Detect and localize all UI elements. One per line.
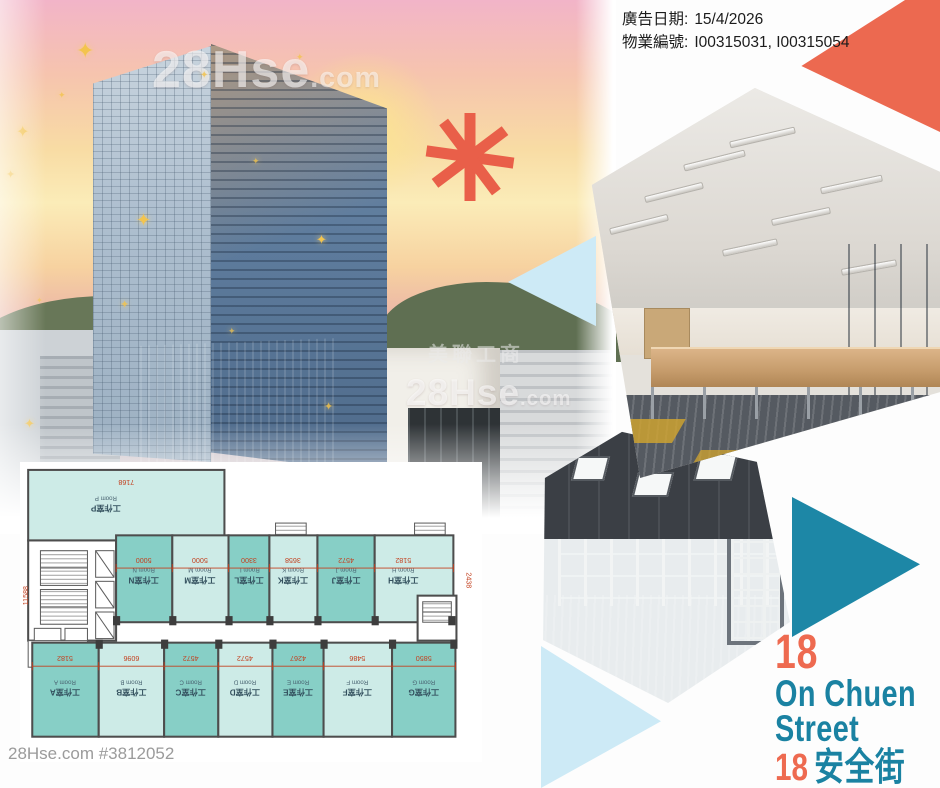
- floor-plan-svg: 工作室P Room P 7168: [20, 462, 482, 762]
- svg-text:Room D: Room D: [233, 678, 256, 685]
- svg-text:工作室D: 工作室D: [230, 688, 260, 698]
- svg-text:Room H: Room H: [392, 566, 414, 573]
- svg-text:工作室C: 工作室C: [175, 688, 205, 698]
- svg-text:工作室E: 工作室E: [283, 688, 313, 698]
- svg-text:7168: 7168: [118, 478, 134, 486]
- property-no-line: 物業編號:I00315031, I00315054: [622, 31, 849, 54]
- svg-text:工作室P: 工作室P: [90, 504, 120, 514]
- svg-text:Room E: Room E: [287, 678, 309, 685]
- svg-text:Room P: Room P: [95, 495, 117, 502]
- title-zh-row: 18安全街: [775, 750, 916, 786]
- sparkle-icon: ✦: [252, 156, 260, 167]
- svg-text:工作室M: 工作室M: [184, 575, 215, 585]
- svg-text:Room L: Room L: [238, 566, 260, 573]
- floorplan-unit: 工作室P Room P 7168: [28, 470, 224, 541]
- svg-text:工作室G: 工作室G: [408, 688, 439, 698]
- svg-text:Room B: Room B: [120, 678, 142, 685]
- svg-text:5182: 5182: [57, 654, 73, 662]
- svg-text:Room N: Room N: [132, 566, 154, 573]
- svg-text:工作室H: 工作室H: [388, 575, 418, 585]
- svg-text:工作室J: 工作室J: [332, 575, 361, 585]
- property-no-label: 物業編號:: [622, 34, 688, 51]
- sparkle-icon: ✦: [58, 90, 66, 101]
- svg-text:Room G: Room G: [412, 678, 435, 685]
- floor-plan: 工作室P Room P 7168: [20, 462, 482, 762]
- svg-text:工作室N: 工作室N: [128, 575, 158, 585]
- sparkle-icon: ✦: [136, 210, 151, 231]
- property-title: 18 On Chuen Street 18安全街: [775, 630, 940, 786]
- sparkle-icon: ✦: [316, 232, 327, 248]
- sparkle-icon: ✦: [324, 400, 333, 413]
- floorplan-top-row: 工作室NRoom N 工作室MRoom M 工作室LRoom L 工作室KRoo…: [116, 535, 453, 622]
- svg-text:工作室K: 工作室K: [278, 575, 308, 585]
- svg-text:5000: 5000: [192, 556, 208, 564]
- svg-text:Room C: Room C: [179, 678, 202, 685]
- teal-triangle: [792, 497, 920, 637]
- svg-text:Room J: Room J: [336, 566, 357, 573]
- svg-text:3658: 3658: [285, 556, 301, 564]
- svg-text:Room M: Room M: [188, 566, 211, 573]
- svg-text:4572: 4572: [338, 556, 354, 564]
- svg-text:5850: 5850: [416, 654, 432, 662]
- svg-text:4572: 4572: [237, 654, 253, 662]
- sparkle-icon: ✦: [200, 70, 208, 81]
- svg-text:3300: 3300: [241, 556, 257, 564]
- svg-text:5486: 5486: [349, 654, 365, 662]
- svg-text:Room F: Room F: [346, 678, 368, 685]
- title-street-en-1: On Chuen: [775, 676, 916, 711]
- ad-date-label: 廣告日期:: [622, 11, 688, 28]
- svg-text:工作室B: 工作室B: [116, 688, 146, 698]
- svg-text:工作室L: 工作室L: [234, 575, 263, 585]
- sparkle-icon: ✦: [76, 38, 94, 64]
- title-street-zh: 安全街: [814, 747, 905, 788]
- svg-text:5000: 5000: [136, 556, 152, 564]
- listing-flyer: 可祥物流 28Hse.com 美聯工商 28Hse.com ✦ ✦ ✦ ✦ ✦ …: [0, 0, 940, 788]
- ac-platform: [276, 523, 307, 535]
- watermark-agency: 美聯工商: [428, 338, 524, 367]
- meeting-table: [651, 347, 940, 387]
- sparkle-icon: ✦: [296, 52, 304, 63]
- listing-id: 28Hse.com #3812052: [8, 744, 174, 764]
- svg-text:5182: 5182: [395, 556, 411, 564]
- ceiling-light: [632, 472, 674, 497]
- svg-text:Room A: Room A: [53, 678, 76, 685]
- watermark-28hse: 28Hse.com: [152, 40, 381, 100]
- svg-text:11588: 11588: [22, 586, 30, 605]
- sparkle-icon: ✦: [228, 326, 236, 337]
- svg-text:工作室A: 工作室A: [50, 688, 80, 698]
- ad-date-value: 15/4/2026: [694, 11, 763, 28]
- office-interior-photo-1: [588, 86, 940, 482]
- watermark-28hse: 28Hse.com: [406, 372, 572, 414]
- building-exterior-photo: 可祥物流 28Hse.com 美聯工商 28Hse.com ✦ ✦ ✦ ✦ ✦ …: [0, 0, 616, 534]
- ad-date-line: 廣告日期:15/4/2026: [622, 8, 849, 31]
- svg-text:2438: 2438: [465, 572, 473, 588]
- svg-text:4572: 4572: [183, 654, 199, 662]
- svg-text:工作室F: 工作室F: [343, 688, 372, 698]
- svg-text:6096: 6096: [123, 654, 139, 662]
- ceiling-light: [571, 456, 611, 481]
- ad-info: 廣告日期:15/4/2026 物業編號:I00315031, I00315054: [622, 8, 849, 54]
- svg-text:Room K: Room K: [281, 566, 304, 573]
- table-legs: [651, 387, 940, 419]
- svg-text:4267: 4267: [290, 654, 306, 662]
- sparkle-icon: ✦: [120, 298, 129, 311]
- title-number-zh: 18: [775, 747, 808, 788]
- asterisk-icon: [423, 110, 517, 204]
- ac-platform: [415, 523, 446, 535]
- property-no-value: I00315031, I00315054: [694, 34, 849, 51]
- title-street-en-2: Street: [775, 711, 916, 746]
- title-number: 18: [775, 630, 916, 676]
